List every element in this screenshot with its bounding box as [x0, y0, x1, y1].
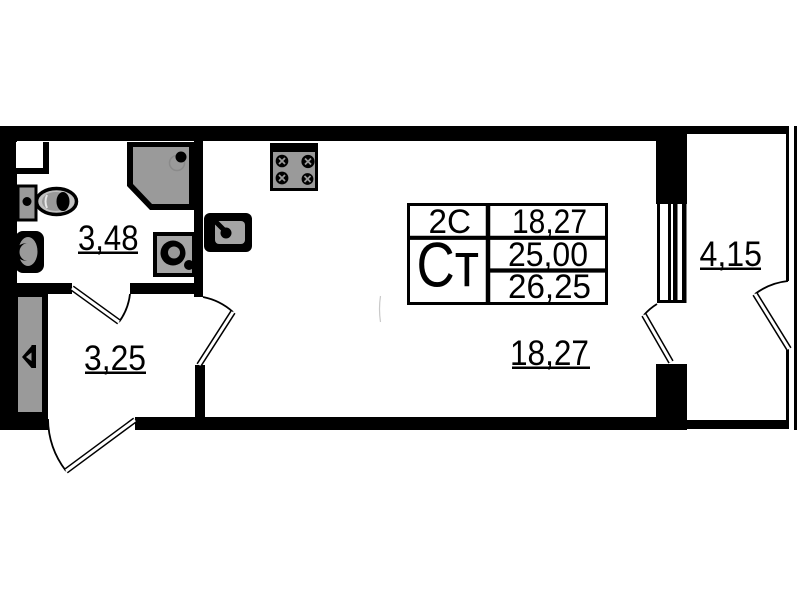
svg-text:Ст: Ст [417, 231, 480, 301]
svg-text:26,25: 26,25 [508, 268, 591, 306]
